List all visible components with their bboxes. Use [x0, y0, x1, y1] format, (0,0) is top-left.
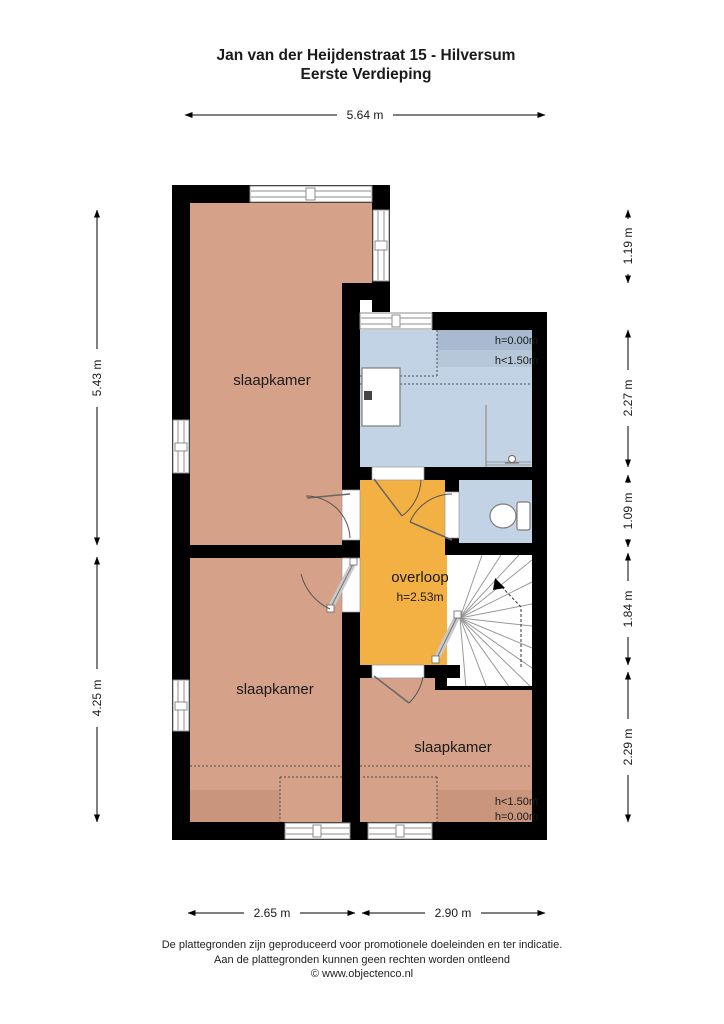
floorplan-canvas: Jan van der Heijdenstraat 15 - Hilversum…	[0, 0, 724, 1024]
window-bottom-wall-left	[285, 823, 350, 839]
title-line1: Jan van der Heijdenstraat 15 - Hilversum	[217, 47, 516, 64]
dim-right-1-value: 1.19 m	[621, 228, 635, 265]
window-left-wall-upper	[173, 420, 189, 473]
dim-right-3-value: 1.09 m	[621, 493, 635, 530]
dim-right-4-value: 1.84 m	[621, 591, 635, 628]
dim-left-lower-value: 4.25 m	[90, 680, 104, 717]
label-landing: overloop	[391, 569, 449, 586]
footer-line1: De plattegronden zijn geproduceerd voor …	[162, 939, 563, 951]
dim-bottom-left-value: 2.65 m	[254, 906, 291, 920]
label-bathroom-h-zero: h=0.00m	[495, 335, 538, 347]
opening-bathroom	[372, 467, 424, 480]
dimension-right-1: 1.19 m	[619, 210, 637, 283]
washing-machine-icon	[362, 368, 400, 426]
dimension-right-2: 2.27 m	[619, 330, 637, 467]
dimension-right-4: 1.84 m	[619, 553, 637, 665]
toilet-icon	[490, 502, 530, 530]
label-bedroom3-h-zero: h=0.00m	[495, 811, 538, 823]
opening-bedroom-bottom-right	[372, 665, 424, 678]
dim-bottom-right-value: 2.90 m	[435, 906, 472, 920]
bedroom-bottom-left-shaded-band	[190, 790, 280, 822]
dimension-bottom-left: 2.65 m	[188, 905, 355, 921]
title-line2: Eerste Verdieping	[301, 66, 432, 83]
plan-title: Jan van der Heijdenstraat 15 - Hilversum…	[217, 47, 516, 83]
opening-toilet	[445, 492, 459, 538]
dim-right-2-value: 2.27 m	[621, 380, 635, 417]
dim-top-value: 5.64 m	[347, 108, 384, 122]
window-bottom-wall-right	[368, 823, 432, 839]
window-left-wall-lower	[173, 680, 189, 731]
dimension-right-5: 2.29 m	[619, 672, 637, 822]
label-bedroom3-h-low: h<1.50m	[495, 796, 538, 808]
footer-disclaimer: De plattegronden zijn geproduceerd voor …	[162, 939, 563, 980]
dimension-top: 5.64 m	[185, 107, 545, 123]
dimension-left-upper: 5.43 m	[88, 210, 106, 545]
label-landing-height: h=2.53m	[396, 590, 443, 604]
footer-line3: © www.objectenco.nl	[311, 968, 413, 980]
label-bathroom-h-low: h<1.50m	[495, 355, 538, 367]
dimension-right-3: 1.09 m	[619, 475, 637, 547]
window-bathroom-dormer	[360, 313, 432, 329]
footer-line2: Aan de plattegronden kunnen geen rechten…	[214, 954, 510, 966]
dim-right-5-value: 2.29 m	[621, 729, 635, 766]
opening-bedroom-top	[342, 490, 360, 540]
label-bedroom-bottom-left: slaapkamer	[236, 681, 314, 698]
dimension-left-lower: 4.25 m	[88, 557, 106, 822]
label-bedroom-top: slaapkamer	[233, 372, 311, 389]
dim-left-upper-value: 5.43 m	[90, 360, 104, 397]
window-top-wall	[250, 186, 372, 202]
dimension-bottom-right: 2.90 m	[362, 905, 545, 921]
floorplan-page: Jan van der Heijdenstraat 15 - Hilversum…	[0, 0, 724, 1024]
label-bedroom-bottom-right: slaapkamer	[414, 739, 492, 756]
window-right-wall-bedroom-top	[373, 210, 389, 281]
